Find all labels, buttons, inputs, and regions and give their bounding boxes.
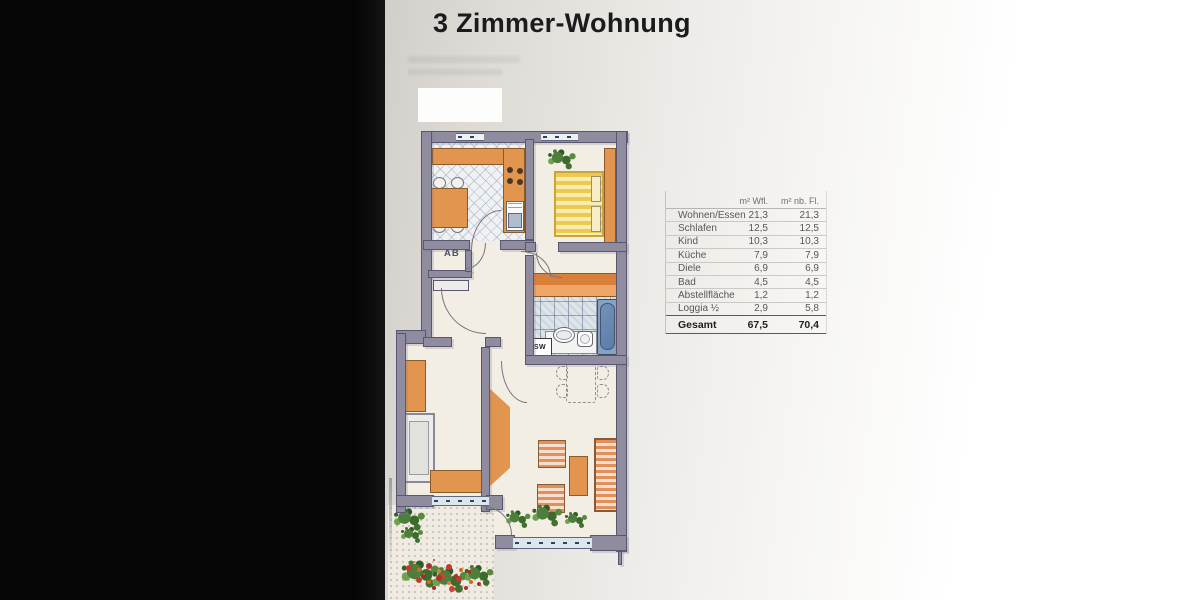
window (541, 133, 578, 141)
flower-bed-blossoms (406, 565, 412, 571)
table-row: Abstellfläche1,21,2 (666, 289, 826, 302)
wall (525, 139, 534, 240)
plant-icon (536, 507, 548, 519)
window (513, 537, 592, 549)
plant-icon (398, 511, 411, 524)
child-wardrobe (405, 360, 426, 412)
coffee-table (569, 456, 588, 496)
flower-bed-foliage (437, 570, 451, 584)
faded-print-text (408, 56, 520, 63)
table-total-row: Gesamt 67,5 70,4 (666, 315, 826, 334)
child-desk (430, 470, 483, 493)
kitchen-sink-basin (508, 213, 522, 228)
loggia-boundary (389, 478, 392, 568)
dashed-chair (556, 366, 568, 380)
room-label-ab: AB (444, 248, 460, 259)
table-row: Diele6,96,9 (666, 263, 826, 276)
kitchen-counter (432, 148, 504, 165)
table-row: Loggia ½2,95,8 (666, 303, 826, 315)
armchair (538, 440, 566, 468)
header-nbfl: m² nb. Fl. (781, 196, 819, 206)
table-row: Wohnen/Essen21,321,3 (666, 209, 826, 222)
table-header: m² Wfl. m² nb. Fl. (666, 191, 826, 209)
dashed-chair (597, 366, 609, 380)
plant-icon (404, 529, 413, 538)
bed-pillow (591, 206, 601, 232)
faded-print-text (408, 69, 502, 75)
table-row: Küche7,97,9 (666, 249, 826, 262)
window (456, 133, 484, 141)
wall (558, 242, 627, 252)
wall (525, 355, 627, 365)
wall (396, 333, 406, 513)
wall (396, 495, 434, 507)
header-wfl: m² Wfl. (740, 196, 769, 206)
photo-dark-margin (0, 0, 385, 600)
kitchen-table (429, 188, 468, 228)
stove-burners (507, 167, 513, 173)
plant-icon (568, 514, 577, 523)
dashed-chair (597, 384, 609, 398)
bathtub-basin (600, 303, 615, 350)
bedroom-wardrobe (604, 148, 616, 245)
page-title: 3 Zimmer-Wohnung (433, 8, 691, 39)
table-row: Kind10,310,3 (666, 236, 826, 249)
window (432, 496, 489, 506)
bed-pillow (591, 176, 601, 202)
wall (421, 131, 432, 340)
room-area-table: m² Wfl. m² nb. Fl. Wohnen/Essen21,321,3 … (665, 191, 827, 334)
flower-bed-foliage (469, 568, 481, 580)
plant-icon (552, 152, 563, 163)
flower-bed-blossoms (416, 577, 422, 583)
wall (481, 347, 490, 512)
floor-plan: SW (388, 125, 634, 600)
washbasin (553, 327, 575, 343)
dashed-dining-table (566, 363, 596, 403)
wall (423, 337, 452, 347)
white-label-patch (418, 88, 502, 122)
plant-icon (510, 513, 520, 523)
wall (618, 551, 622, 565)
scanned-brochure-photo: 3 Zimmer-Wohnung SW (0, 0, 1200, 600)
table-row: Bad4,54,5 (666, 276, 826, 289)
dashed-chair (556, 384, 568, 398)
wall (616, 131, 627, 552)
washing-machine-label: SW (534, 344, 546, 351)
wall (590, 535, 627, 551)
toilet (577, 331, 593, 347)
table-row: Schlafen12,512,5 (666, 222, 826, 235)
wall (485, 337, 501, 347)
wall (495, 535, 515, 549)
